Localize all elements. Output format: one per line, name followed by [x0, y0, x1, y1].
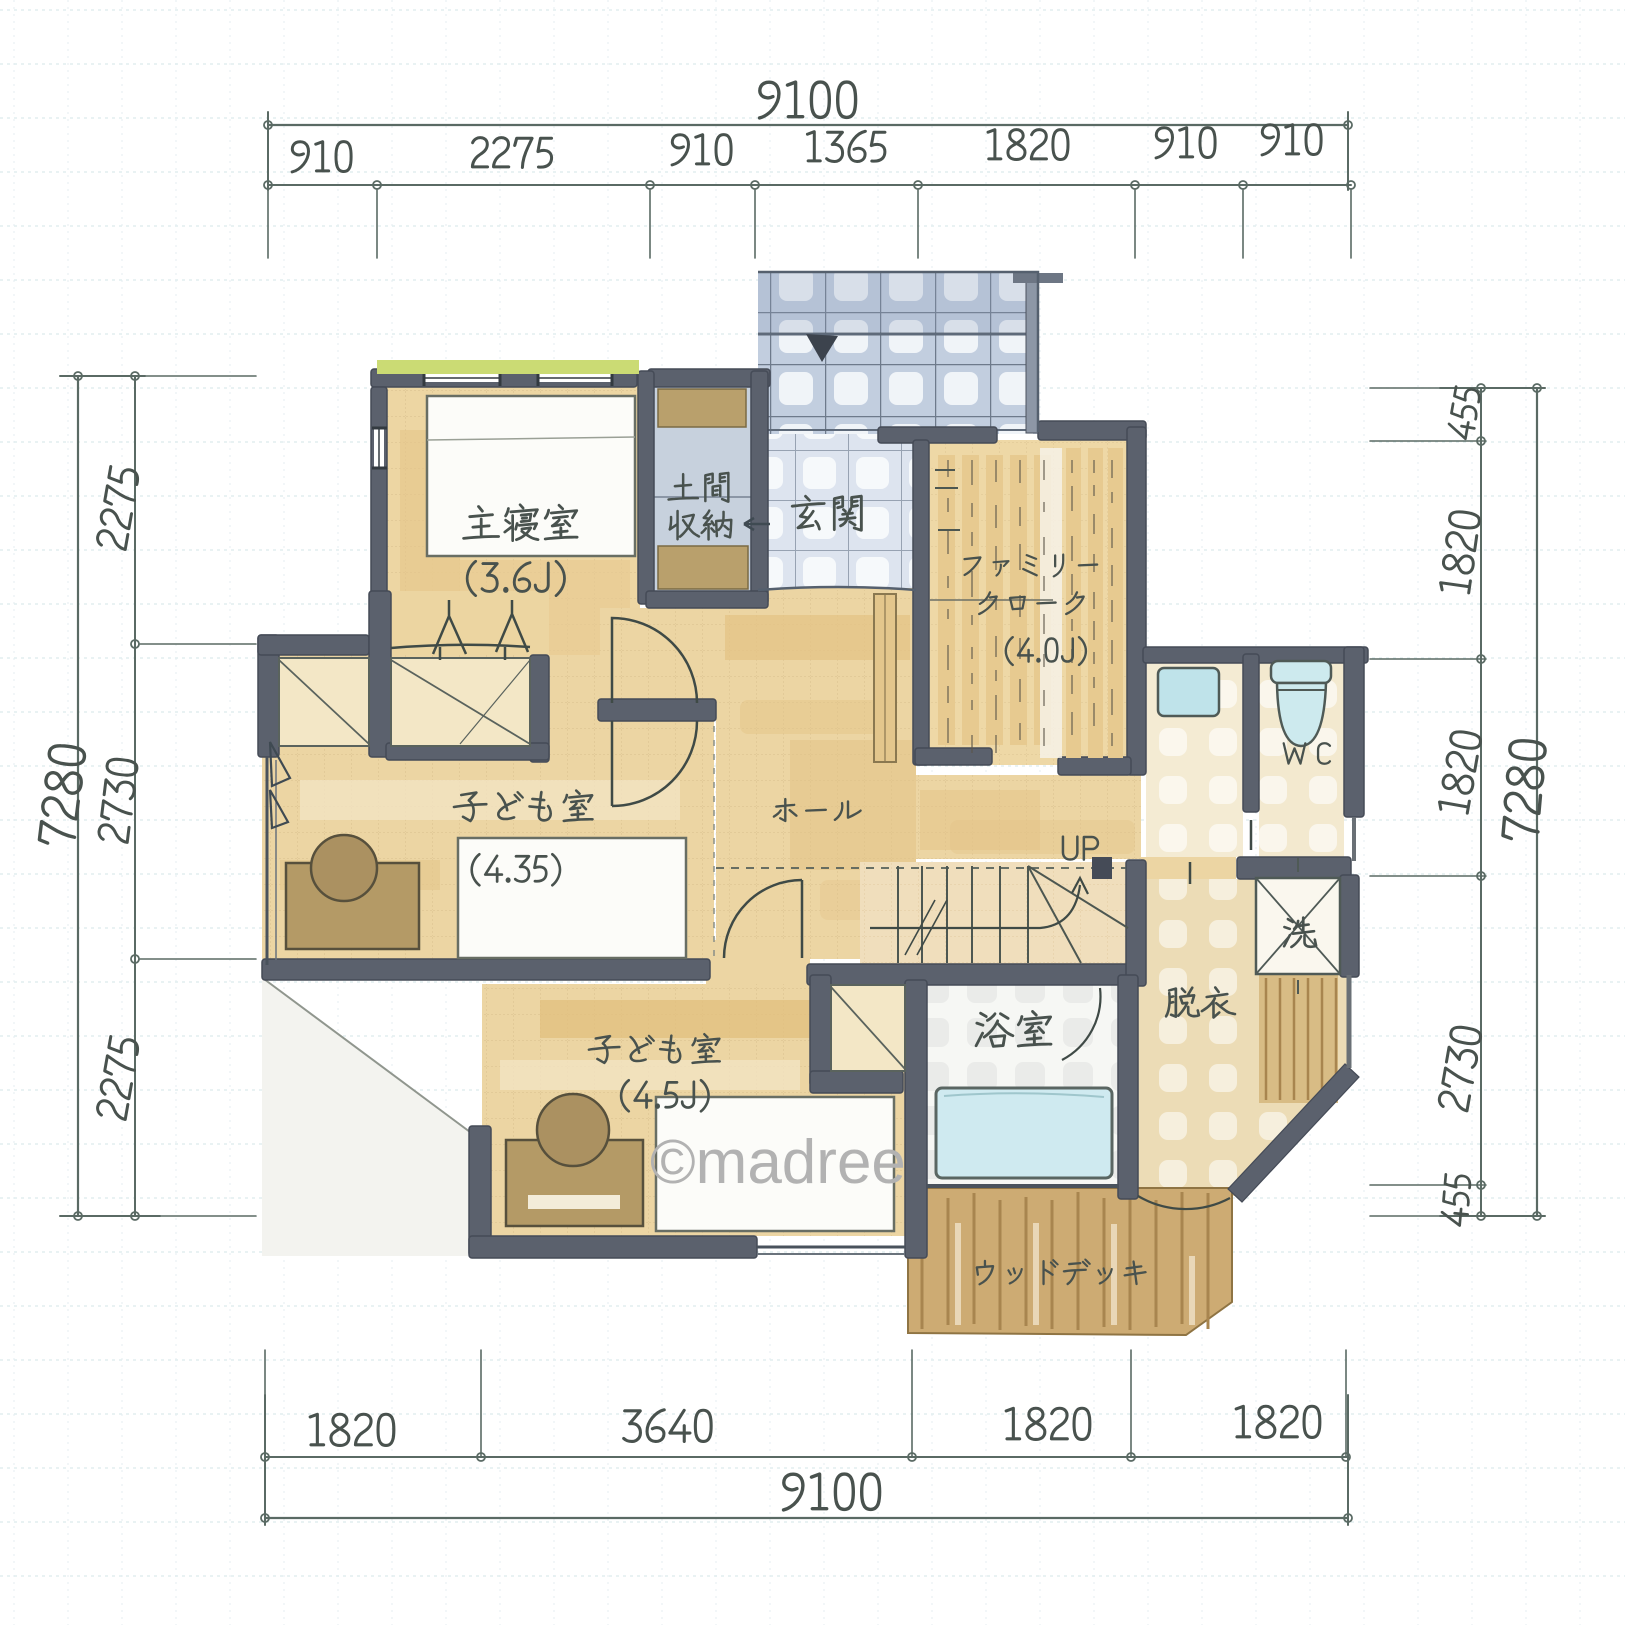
svg-text:©madree: ©madree: [650, 1128, 906, 1197]
